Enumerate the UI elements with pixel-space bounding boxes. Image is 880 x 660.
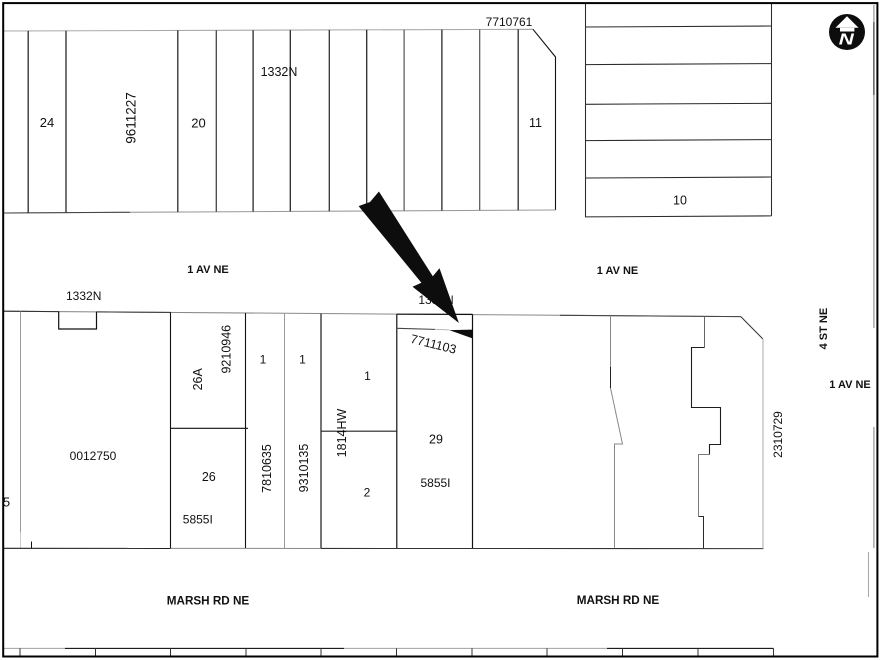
svg-text:MARSH RD NE: MARSH RD NE [167,595,250,608]
svg-text:N: N [839,30,855,48]
svg-text:5: 5 [3,495,10,510]
svg-text:7810635: 7810635 [260,444,274,493]
svg-text:7710761: 7710761 [486,15,533,29]
svg-text:1 AV NE: 1 AV NE [597,265,639,277]
svg-text:4 ST NE: 4 ST NE [818,308,830,350]
svg-text:26A: 26A [191,368,205,391]
svg-text:1332N: 1332N [66,289,101,303]
svg-text:1332N: 1332N [261,65,298,79]
svg-text:1: 1 [299,352,306,366]
svg-text:20: 20 [191,116,205,131]
svg-text:1 AV NE: 1 AV NE [829,379,871,391]
svg-text:2: 2 [364,485,371,499]
svg-text:9611227: 9611227 [124,92,139,144]
svg-text:24: 24 [40,115,54,130]
svg-text:2310729: 2310729 [771,411,785,458]
svg-text:11: 11 [529,116,542,130]
svg-text:0012750: 0012750 [70,449,117,463]
svg-text:9310135: 9310135 [297,444,311,493]
svg-text:10: 10 [673,194,687,208]
svg-text:1: 1 [260,352,267,366]
svg-text:5855I: 5855I [420,476,450,490]
svg-text:26: 26 [202,470,216,484]
svg-text:1: 1 [364,369,371,383]
svg-text:29: 29 [429,432,443,446]
svg-text:MARSH RD NE: MARSH RD NE [577,594,660,607]
svg-text:9210946: 9210946 [219,325,233,374]
svg-text:1 AV NE: 1 AV NE [187,264,229,276]
svg-text:5855I: 5855I [183,512,213,526]
svg-text:1814HW: 1814HW [335,408,349,457]
